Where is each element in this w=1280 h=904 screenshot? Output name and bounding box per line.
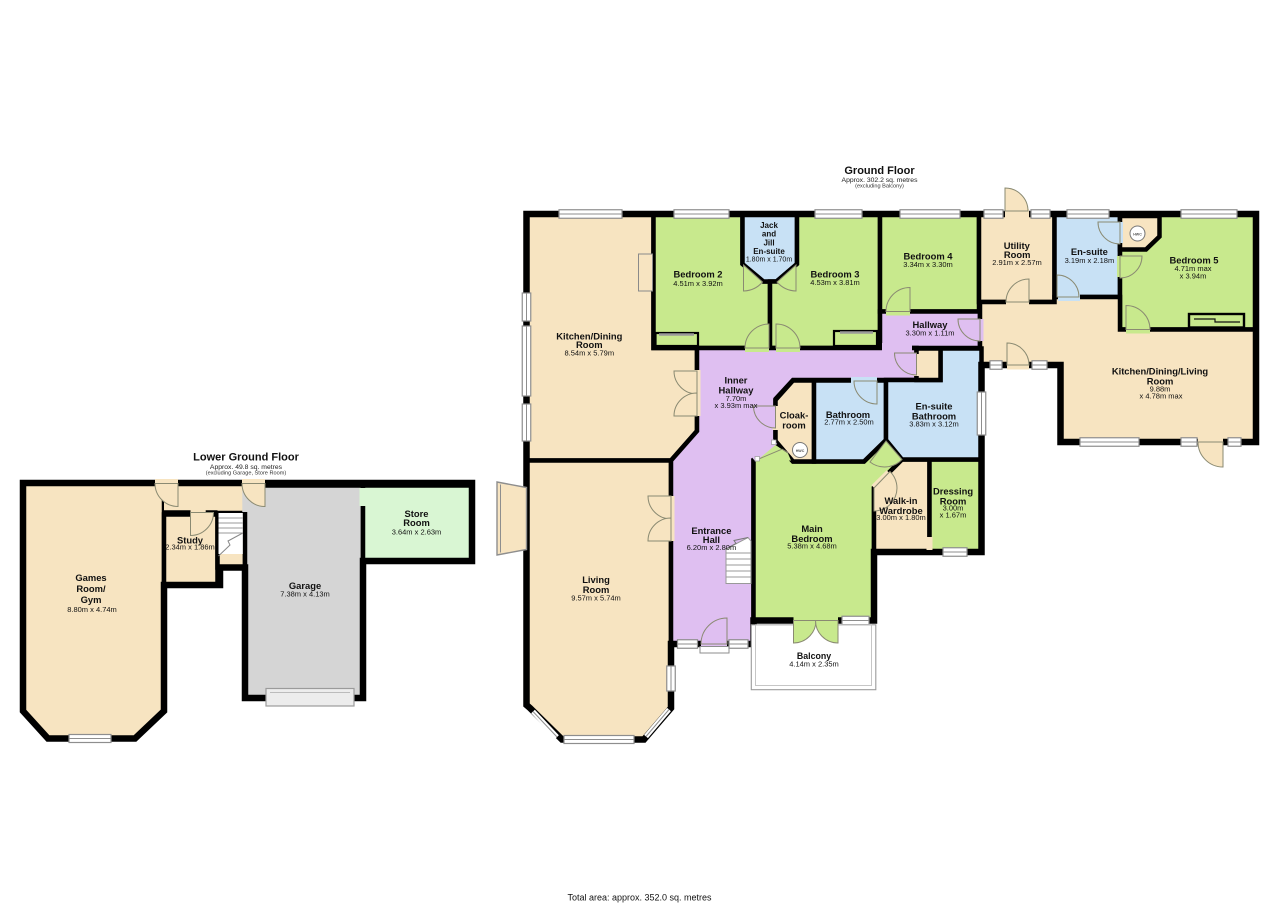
svg-text:(excluding Balcony): (excluding Balcony) — [855, 183, 904, 189]
svg-text:3.64m x 2.63m: 3.64m x 2.63m — [392, 527, 442, 536]
svg-text:6.20m x 2.80m: 6.20m x 2.80m — [687, 543, 737, 552]
svg-text:2.34m x 1.86m: 2.34m x 1.86m — [165, 543, 215, 552]
svg-text:4.51m x 3.92m: 4.51m x 3.92m — [673, 279, 723, 288]
svg-text:room: room — [782, 419, 805, 430]
svg-text:x 4.78m max: x 4.78m max — [1140, 392, 1183, 401]
svg-text:4.53m x 3.81m: 4.53m x 3.81m — [810, 278, 860, 287]
svg-text:8.80m x 4.74m: 8.80m x 4.74m — [67, 605, 117, 614]
svg-text:2.91m x 2.57m: 2.91m x 2.57m — [992, 258, 1042, 267]
svg-text:1.80m x 1.70m: 1.80m x 1.70m — [746, 257, 792, 264]
svg-text:3.30m x 1.11m: 3.30m x 1.11m — [905, 329, 954, 338]
svg-text:Gym: Gym — [81, 594, 102, 605]
svg-text:Bedroom 2: Bedroom 2 — [674, 269, 723, 280]
svg-text:9.57m x 5.74m: 9.57m x 5.74m — [571, 594, 621, 603]
svg-text:3.83m x 3.12m: 3.83m x 3.12m — [909, 419, 959, 428]
svg-text:Ground Floor: Ground Floor — [844, 165, 915, 177]
svg-text:Room/: Room/ — [76, 583, 106, 594]
svg-text:3.00m x 1.80m: 3.00m x 1.80m — [876, 513, 926, 522]
svg-text:Total area: approx. 352.0 sq.: Total area: approx. 352.0 sq. metres — [567, 893, 712, 903]
svg-text:x 1.67m: x 1.67m — [940, 511, 967, 520]
svg-text:En-suite: En-suite — [753, 247, 785, 256]
svg-text:(excluding Garage, Store Room): (excluding Garage, Store Room) — [206, 470, 287, 476]
svg-text:Jack: Jack — [760, 221, 778, 230]
svg-text:Lower Ground Floor: Lower Ground Floor — [193, 451, 299, 463]
svg-text:3.34m x 3.30m: 3.34m x 3.30m — [903, 260, 953, 269]
svg-text:8.54m x 5.79m: 8.54m x 5.79m — [564, 349, 614, 358]
svg-text:Jill: Jill — [763, 238, 774, 247]
svg-text:Games: Games — [75, 572, 106, 583]
svg-text:x 3.93m max: x 3.93m max — [715, 401, 758, 410]
svg-text:HWC: HWC — [1133, 232, 1142, 236]
svg-text:4.14m x 2.35m: 4.14m x 2.35m — [789, 660, 839, 669]
svg-text:2.77m x 2.50m: 2.77m x 2.50m — [824, 418, 874, 427]
svg-text:3.19m x 2.18m: 3.19m x 2.18m — [1065, 256, 1115, 265]
svg-text:5.38m x 4.68m: 5.38m x 4.68m — [787, 542, 837, 551]
svg-text:HWC: HWC — [796, 449, 805, 453]
svg-text:7.38m x 4.13m: 7.38m x 4.13m — [280, 589, 330, 598]
svg-text:and: and — [762, 230, 776, 239]
svg-text:x 3.94m: x 3.94m — [1180, 272, 1207, 281]
